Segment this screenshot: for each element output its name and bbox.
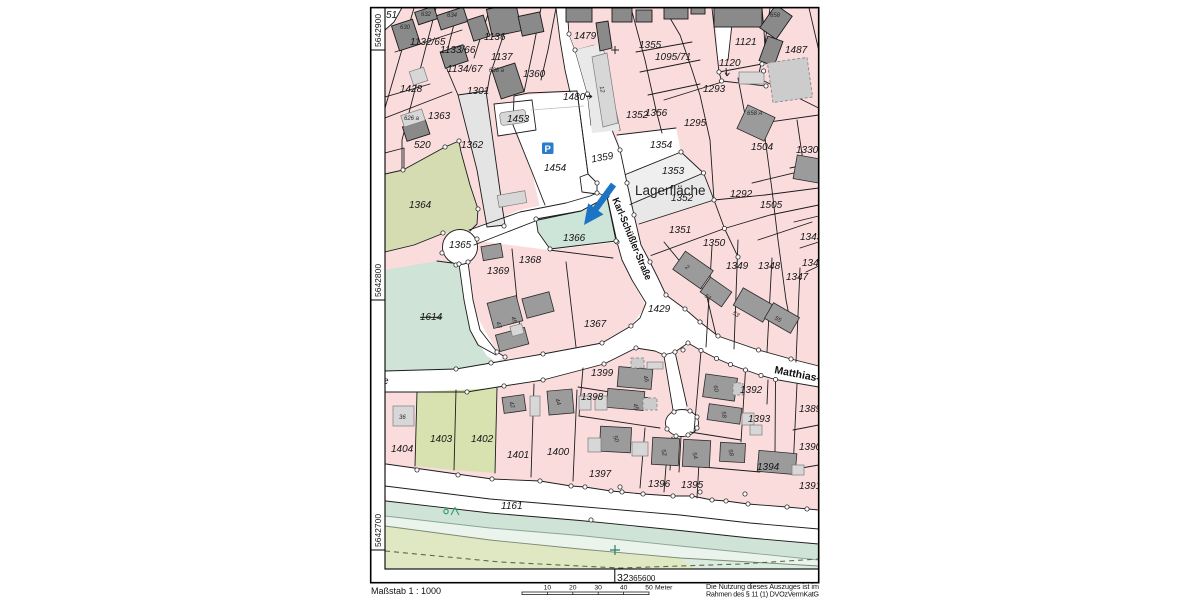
svg-text:1350: 1350 [703, 238, 726, 249]
svg-text:1369: 1369 [487, 266, 510, 277]
svg-text:1355: 1355 [639, 40, 662, 51]
svg-text:1349: 1349 [726, 261, 749, 272]
svg-text:658: 658 [770, 13, 781, 19]
svg-text:Lagerfläche: Lagerfläche [635, 183, 706, 198]
svg-text:40: 40 [620, 585, 628, 592]
svg-text:1295: 1295 [684, 118, 707, 129]
svg-text:1363: 1363 [428, 111, 451, 122]
svg-text:1365: 1365 [449, 240, 472, 251]
svg-text:1402: 1402 [471, 434, 494, 445]
svg-text:1121: 1121 [735, 37, 757, 48]
svg-text:520: 520 [414, 140, 431, 151]
svg-text:1354: 1354 [650, 140, 673, 151]
svg-text:30: 30 [594, 585, 602, 592]
svg-text:1428: 1428 [400, 84, 423, 95]
svg-text:1504: 1504 [751, 142, 774, 153]
svg-text:1161: 1161 [501, 501, 523, 512]
svg-text:1487: 1487 [785, 45, 808, 56]
svg-text:658 A: 658 A [747, 111, 762, 117]
svg-text:1366: 1366 [563, 233, 586, 244]
svg-text:1393: 1393 [748, 414, 771, 425]
svg-text:1292: 1292 [730, 189, 753, 200]
svg-text:Meter: Meter [655, 585, 673, 592]
svg-text:1398: 1398 [581, 392, 604, 403]
svg-text:1399: 1399 [591, 368, 614, 379]
svg-text:1362: 1362 [461, 140, 484, 151]
svg-text:630: 630 [400, 25, 411, 31]
svg-text:1400: 1400 [547, 447, 570, 458]
svg-text:1397: 1397 [589, 469, 612, 480]
svg-text:1396: 1396 [648, 479, 671, 490]
svg-text:1364: 1364 [409, 200, 432, 211]
svg-text:1347: 1347 [786, 272, 809, 283]
svg-text:32365600: 32365600 [617, 572, 656, 584]
svg-text:5642900: 5642900 [373, 14, 383, 47]
svg-text:1395: 1395 [681, 480, 704, 491]
svg-text:1368: 1368 [519, 255, 542, 266]
svg-text:1480: 1480 [563, 92, 586, 103]
svg-text:10: 10 [544, 585, 552, 592]
svg-text:50: 50 [645, 585, 653, 592]
svg-text:5642700: 5642700 [373, 514, 383, 547]
svg-text:1301: 1301 [467, 86, 489, 97]
svg-text:1429: 1429 [648, 304, 671, 315]
svg-text:634: 634 [447, 13, 458, 19]
svg-text:5642800: 5642800 [373, 264, 383, 297]
svg-text:632: 632 [421, 12, 432, 18]
svg-text:636 a: 636 a [489, 68, 505, 74]
svg-text:1404: 1404 [391, 444, 414, 455]
svg-text:36: 36 [399, 415, 406, 421]
svg-text:51: 51 [386, 10, 397, 21]
svg-text:1479: 1479 [574, 31, 597, 42]
svg-text:1614: 1614 [420, 312, 443, 323]
svg-text:1453: 1453 [507, 114, 530, 125]
svg-text:1454: 1454 [544, 163, 567, 174]
svg-text:1095/71: 1095/71 [655, 52, 691, 63]
svg-text:P: P [545, 144, 552, 155]
svg-text:1505: 1505 [760, 200, 783, 211]
svg-text:Rahmen des § 11 (1) DVOzVermKa: Rahmen des § 11 (1) DVOzVermKatG [706, 590, 819, 599]
svg-text:1353: 1353 [662, 166, 685, 177]
svg-text:1367: 1367 [584, 319, 607, 330]
svg-text:1356: 1356 [645, 108, 668, 119]
svg-text:1120: 1120 [719, 58, 741, 69]
svg-text:1360: 1360 [523, 69, 546, 80]
svg-text:1392: 1392 [740, 385, 763, 396]
svg-text:20: 20 [569, 585, 577, 592]
svg-text:1348: 1348 [758, 261, 781, 272]
svg-text:1137: 1137 [491, 52, 513, 63]
svg-text:1330: 1330 [796, 145, 819, 156]
svg-text:1136: 1136 [484, 32, 506, 43]
svg-text:1403: 1403 [430, 434, 453, 445]
svg-text:1293: 1293 [703, 84, 726, 95]
svg-text:626 a: 626 a [404, 116, 420, 122]
svg-text:1394: 1394 [757, 462, 780, 473]
svg-text:1401: 1401 [507, 450, 529, 461]
svg-text:1351: 1351 [669, 225, 691, 236]
svg-text:Maßstab 1 : 1000: Maßstab 1 : 1000 [371, 586, 441, 596]
svg-text:1133/66: 1133/66 [440, 45, 476, 56]
svg-text:1134/67: 1134/67 [447, 64, 483, 75]
